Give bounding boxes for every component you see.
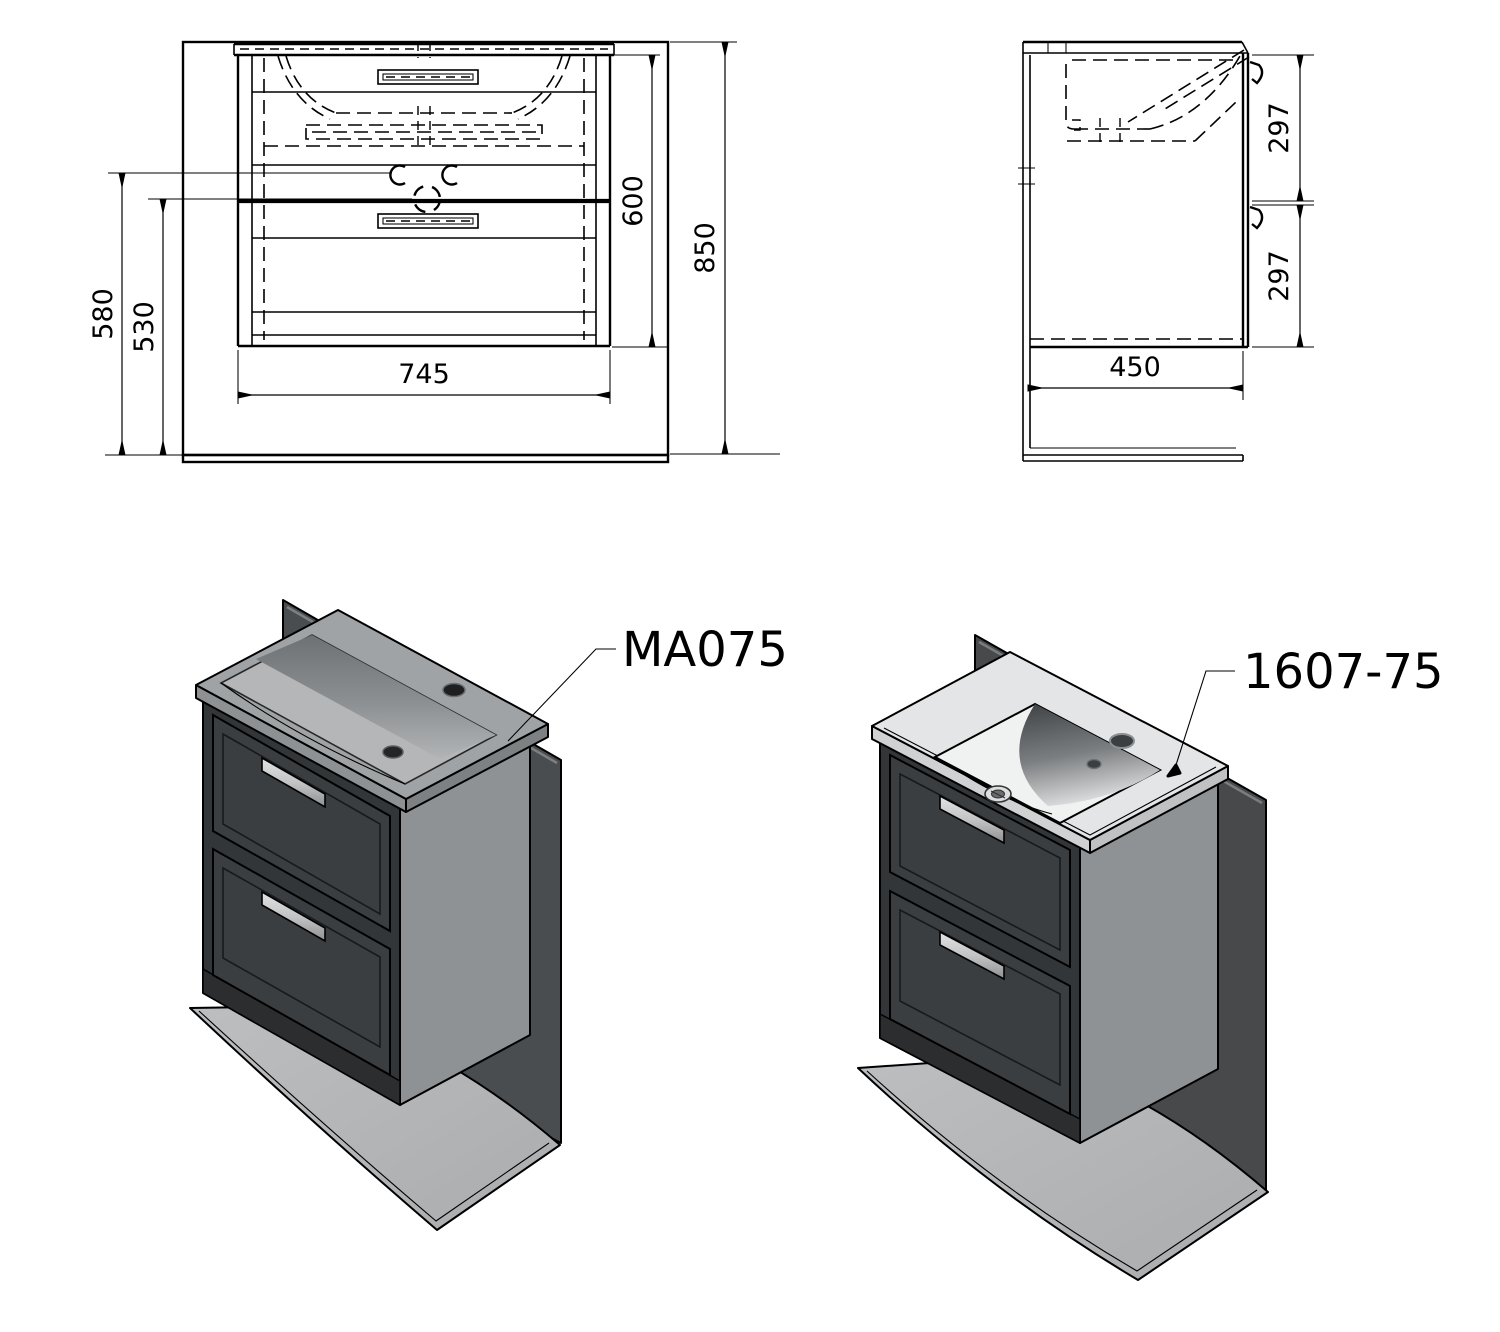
dim-upper-label: 297 [1264, 102, 1295, 154]
product-code-right: 1607-75 [1243, 644, 1444, 700]
dim-850: 850 [670, 42, 780, 454]
dim-total-height-label: 850 [690, 222, 721, 274]
technical-drawing-page: 745 600 850 580 530 [0, 0, 1500, 1332]
dim-left-inner-label: 530 [129, 301, 160, 353]
side-mount-hooks [1250, 62, 1262, 228]
dim-600: 600 [612, 55, 667, 347]
dim-450: 450 [1028, 351, 1243, 400]
side-counter-slab [1023, 42, 1248, 53]
label-left-product: MA075 [508, 622, 788, 741]
mount-clip-right [442, 166, 457, 185]
front-counter-slab [234, 44, 614, 55]
isometric-view-right: 1607-75 [858, 635, 1444, 1280]
iso-left-faucet-hole [443, 684, 465, 697]
front-view: 745 600 850 580 530 [88, 42, 780, 462]
iso-right-overflow-hole [1087, 760, 1101, 769]
front-hidden-basin-outline [264, 42, 584, 148]
dim-745: 745 [238, 350, 610, 404]
side-hidden-basin [1066, 50, 1249, 145]
dim-width-label: 745 [398, 359, 450, 390]
iso-right-faucet-hole [1110, 734, 1134, 748]
front-floor-plinth [183, 455, 668, 462]
dim-depth-label: 450 [1109, 352, 1161, 383]
side-wall-floor [1018, 42, 1243, 461]
front-drawer-2 [252, 214, 596, 335]
side-view: 297 297 450 [1018, 42, 1314, 461]
dim-cabinet-height-label: 600 [618, 175, 649, 227]
vanity-drawing-svg: 745 600 850 580 530 [0, 0, 1500, 1332]
mount-clip-left [390, 166, 405, 185]
iso-left-drain-hole [383, 746, 403, 758]
isometric-view-left: MA075 [190, 600, 788, 1230]
dim-lower-label: 297 [1264, 250, 1295, 302]
dim-297-lower: 297 [1252, 205, 1314, 347]
side-cabinet [1030, 53, 1248, 347]
iso-right-drain [985, 786, 1011, 802]
front-drawer-1 [252, 70, 596, 165]
product-code-left: MA075 [622, 622, 788, 678]
dim-left-outer-label: 580 [88, 288, 119, 340]
